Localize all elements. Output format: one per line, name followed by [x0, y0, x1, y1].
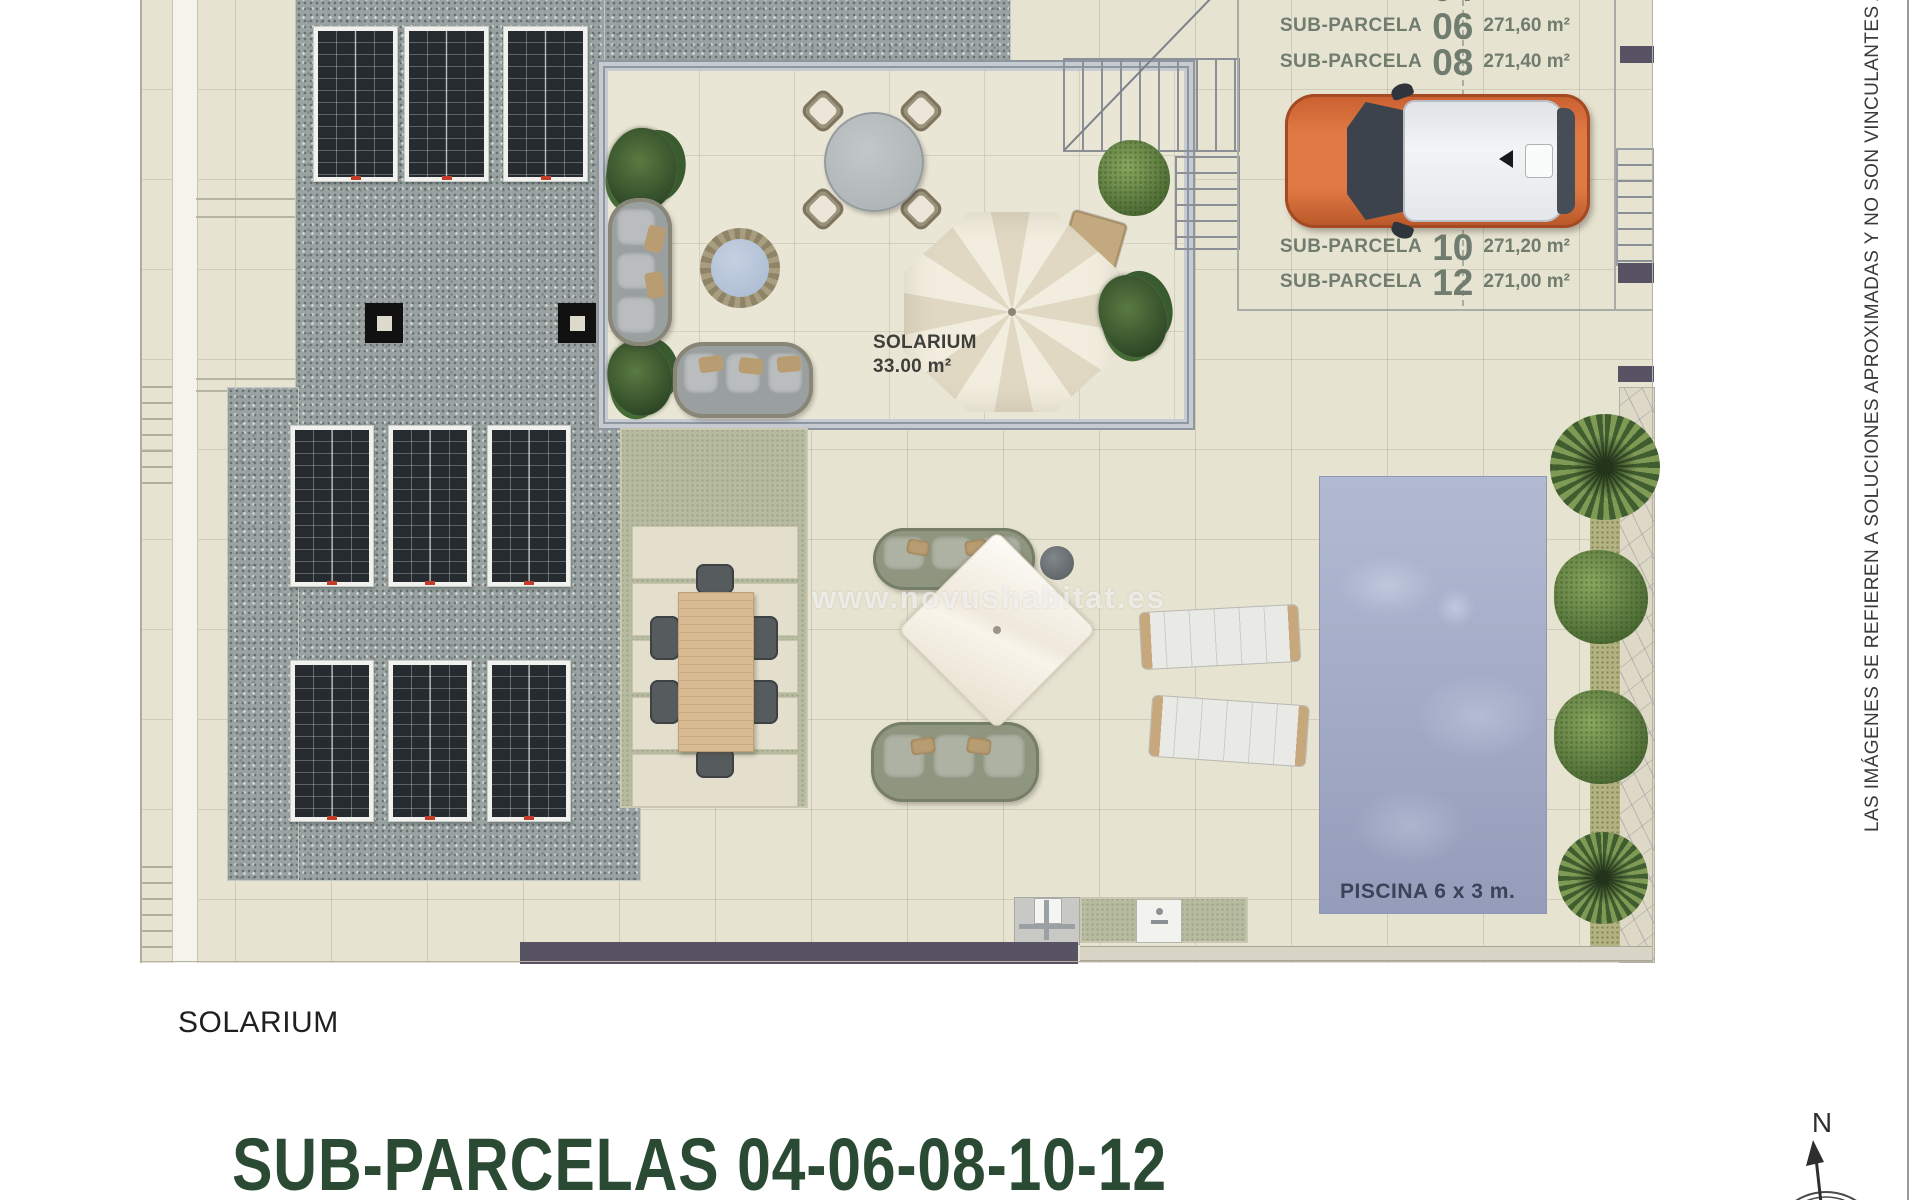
parasol-diamond-pole — [993, 626, 1001, 634]
outdoor-sofa-horizontal — [673, 342, 813, 418]
site-plan-canvas: SOLARIUM 33.00 m² PISCINA 6 x 3 m. — [0, 0, 1920, 1200]
solarium-zone-area: 33.00 m² — [873, 355, 977, 379]
solar-panel — [388, 660, 472, 822]
staircase-upper — [1063, 58, 1240, 152]
plan-bottom-edge — [140, 961, 1652, 962]
solarium-zone-label: SOLARIUM 33.00 m² — [873, 331, 977, 379]
subparcel-number: 06 — [1432, 8, 1473, 45]
roof-skylight — [558, 303, 596, 343]
dining-chair — [696, 564, 734, 594]
page-title: SUB-PARCELAS 04-06-08-10-12 — [232, 1122, 1167, 1200]
subparcel-area: 271,20 m² — [1483, 236, 1570, 258]
round-table — [824, 112, 924, 212]
garden-palm — [1558, 832, 1648, 924]
sidewalk-band-line — [196, 198, 296, 218]
subparcel-area: 271,60 m² — [1483, 15, 1570, 37]
gravel-band-top — [605, 0, 1010, 64]
equipment-pad — [1136, 899, 1182, 943]
subparcel-area: 271,00 m² — [1483, 271, 1570, 293]
car-marker — [1499, 150, 1513, 168]
dining-chair — [696, 748, 734, 778]
fire-pit-table — [1040, 546, 1074, 580]
garden-bush — [1554, 550, 1648, 644]
subparcel-label: SUB-PARCELA — [1280, 15, 1422, 37]
fixture-dot — [1156, 908, 1163, 915]
subparcel-row-08: SUB-PARCELA 08 271,40 m² — [1250, 42, 1570, 82]
solar-panel — [290, 660, 374, 822]
floor-label: SOLARIUM — [178, 1006, 339, 1040]
subparcel-number: 08 — [1432, 44, 1473, 81]
wall-stub — [1620, 46, 1654, 63]
shower-pole — [1044, 900, 1049, 940]
garden-palm — [1550, 414, 1660, 520]
solarium-zone-name: SOLARIUM — [873, 331, 977, 355]
swimming-pool — [1320, 477, 1546, 913]
subparcel-row-12: SUB-PARCELA 12 271,00 m² — [1250, 262, 1570, 302]
car-rear-window — [1557, 108, 1575, 214]
subparcel-label: SUB-PARCELA — [1280, 271, 1422, 293]
louver-ticks-lower — [142, 852, 172, 962]
stair-bush — [1098, 140, 1170, 216]
parking-left-line — [1237, 0, 1239, 310]
louver-ticks-upper — [142, 372, 172, 492]
solar-panel — [487, 425, 571, 587]
sidewalk-white-band — [172, 0, 198, 963]
side-staircase — [1616, 148, 1654, 266]
solar-panel — [404, 26, 489, 182]
sun-lounger — [1148, 695, 1310, 768]
subparcel-number: 10 — [1432, 229, 1473, 266]
shower-platform — [1014, 897, 1080, 945]
watermark: www.novushabitat.es — [812, 580, 1166, 616]
roof-skylight — [365, 303, 403, 343]
patio-sofa — [871, 722, 1039, 802]
dining-chair — [650, 616, 680, 660]
subparcel-row-10: SUB-PARCELA 10 271,20 m² — [1250, 227, 1570, 267]
gravel-roof-left — [228, 388, 298, 880]
equipment-box — [1080, 897, 1248, 943]
solar-panel — [487, 660, 571, 822]
staircase-lower — [1175, 156, 1240, 250]
compass-north-label: N — [1812, 1107, 1832, 1138]
bottom-path — [1080, 946, 1652, 961]
wall-stub — [1618, 366, 1654, 382]
car-windshield — [1347, 102, 1409, 220]
solar-panel — [503, 26, 588, 182]
disclaimer-text: LAS IMÁGENES SE REFIEREN A SOLUCIONES AP… — [1862, 0, 1884, 832]
subparcel-number: 12 — [1432, 264, 1473, 301]
parked-car — [1285, 92, 1590, 230]
page-border-line — [1907, 0, 1909, 1200]
dining-chair — [650, 680, 680, 724]
wall-stub — [1618, 263, 1654, 283]
car-sunroof — [1525, 144, 1553, 178]
garden-bush — [1554, 690, 1648, 784]
pool-label: PISCINA 6 x 3 m. — [1340, 880, 1515, 904]
solar-panel — [388, 425, 472, 587]
parking-bottom-line — [1237, 309, 1652, 311]
parasol-pole — [1008, 308, 1016, 316]
fixture-bar — [1151, 920, 1168, 924]
subparcel-label: SUB-PARCELA — [1280, 236, 1422, 258]
subparcel-row-06: SUB-PARCELA 06 271,60 m² — [1250, 6, 1570, 46]
outdoor-sofa-vertical — [608, 198, 672, 346]
subparcel-area: 271,40 m² — [1483, 51, 1570, 73]
compass-rose-icon: N — [1742, 1096, 1912, 1200]
dining-table — [678, 592, 754, 752]
solar-panel — [313, 26, 398, 182]
round-rug — [700, 228, 780, 308]
solar-panel — [290, 425, 374, 587]
subparcel-label: SUB-PARCELA — [1280, 51, 1422, 73]
